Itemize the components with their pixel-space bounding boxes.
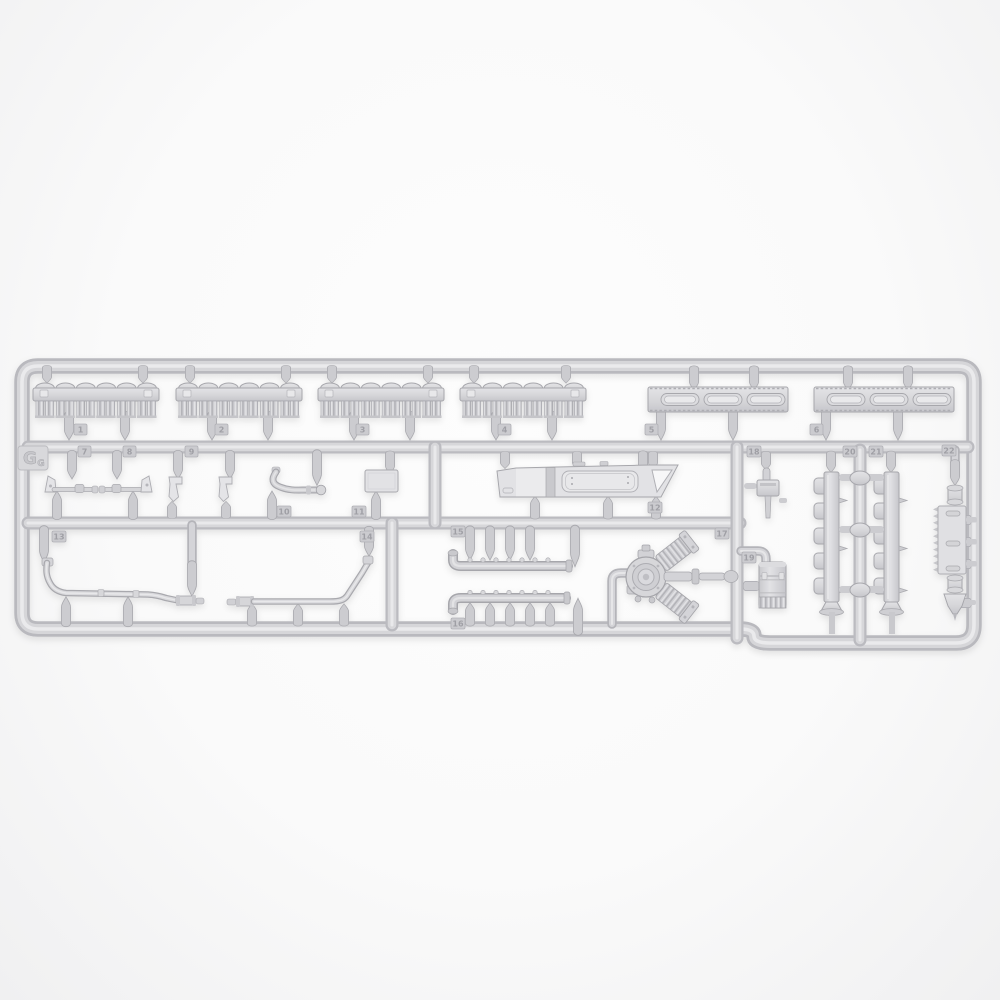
- part-lobed-strip-1: [814, 472, 847, 634]
- svg-text:8: 8: [127, 448, 133, 457]
- part-hook-bracket-2: [219, 477, 232, 502]
- svg-text:6: 6: [814, 426, 820, 435]
- part-hook-bracket-1: [169, 477, 182, 502]
- svg-text:15: 15: [452, 528, 464, 537]
- svg-text:7: 7: [82, 448, 88, 457]
- sprue-letter: G: [23, 449, 37, 469]
- part-number-tag: 4: [498, 424, 511, 435]
- part-number-tag: 2: [215, 424, 228, 435]
- svg-text:11: 11: [353, 508, 365, 517]
- svg-text:21: 21: [870, 448, 882, 457]
- part-number-tag: 16: [451, 618, 465, 629]
- part-number-tag: 8: [123, 446, 136, 457]
- svg-text:20: 20: [844, 448, 856, 457]
- sprue-frame-and-parts: 1 2 3 4 5 6 7 8 9 10 11 12 13 14 15 16 1…: [18, 365, 977, 643]
- svg-text:2: 2: [219, 426, 225, 435]
- svg-text:5: 5: [649, 426, 655, 435]
- part-rack-hub-upper: [947, 485, 963, 505]
- svg-text:18: 18: [748, 448, 760, 457]
- svg-text:3: 3: [360, 426, 366, 435]
- part-number-tag: 5: [645, 424, 658, 435]
- svg-text:22: 22: [943, 447, 954, 456]
- part-number-tag: 3: [356, 424, 369, 435]
- part-lobed-strip-2: [874, 472, 907, 634]
- part-shock-lever: [744, 468, 787, 518]
- part-number-tag: 18: [747, 446, 761, 457]
- svg-text:19: 19: [743, 554, 755, 563]
- svg-text:4: 4: [502, 426, 508, 435]
- part-number-tag: 13: [52, 531, 66, 542]
- part-number-tag: 12: [648, 502, 662, 513]
- svg-text:10: 10: [278, 508, 290, 517]
- sprue-letter-sub: G: [37, 459, 44, 469]
- part-rack-hub-lower: [947, 575, 963, 593]
- part-number-tag: 6: [810, 424, 823, 435]
- part-radial-engine-shaft: [664, 569, 738, 584]
- part-engine-cylinder-bank-3: [318, 383, 444, 418]
- part-tow-bar-right: [227, 556, 373, 607]
- part-number-tag: 19: [742, 552, 756, 563]
- svg-text:13: 13: [53, 533, 64, 542]
- part-number-tag: 7: [78, 446, 91, 457]
- part-number-tag: 9: [185, 446, 198, 457]
- part-engine-cylinder-bank-2: [176, 383, 302, 418]
- part-slotted-rail-2: [814, 387, 954, 412]
- part-number-tag: 15: [451, 526, 465, 537]
- part-hull-glacis-plate: [497, 462, 678, 498]
- svg-text:12: 12: [649, 504, 660, 513]
- part-engine-cylinder-bank-4: [460, 383, 586, 418]
- sprue-letter-plate: G G: [18, 446, 48, 470]
- part-number-tag: 14: [360, 531, 374, 542]
- svg-text:1: 1: [78, 426, 84, 435]
- photo-background: 1 2 3 4 5 6 7 8 9 10 11 12 13 14 15 16 1…: [0, 0, 1000, 1000]
- part-number-tag: 10: [277, 506, 291, 517]
- part-muffler-cylinder: [744, 562, 786, 608]
- svg-text:17: 17: [716, 530, 727, 539]
- part-number-tag: 22: [942, 445, 956, 456]
- part-number-tag: 20: [843, 446, 857, 457]
- svg-text:9: 9: [189, 448, 195, 457]
- sprue-photo: 1 2 3 4 5 6 7 8 9 10 11 12 13 14 15 16 1…: [0, 0, 1000, 1000]
- svg-text:16: 16: [452, 620, 464, 629]
- part-radial-engine: [626, 530, 738, 624]
- part-stowage-box: [365, 470, 398, 492]
- part-number-tag: 1: [74, 424, 87, 435]
- svg-text:14: 14: [361, 533, 373, 542]
- part-slotted-rail-1: [648, 387, 788, 412]
- part-number-tag: 11: [352, 506, 366, 517]
- part-number-tag: 17: [715, 528, 729, 539]
- part-rod-fitting-b: [99, 476, 152, 493]
- part-number-tag: 21: [869, 446, 883, 457]
- part-engine-cylinder-bank-1: [33, 383, 159, 418]
